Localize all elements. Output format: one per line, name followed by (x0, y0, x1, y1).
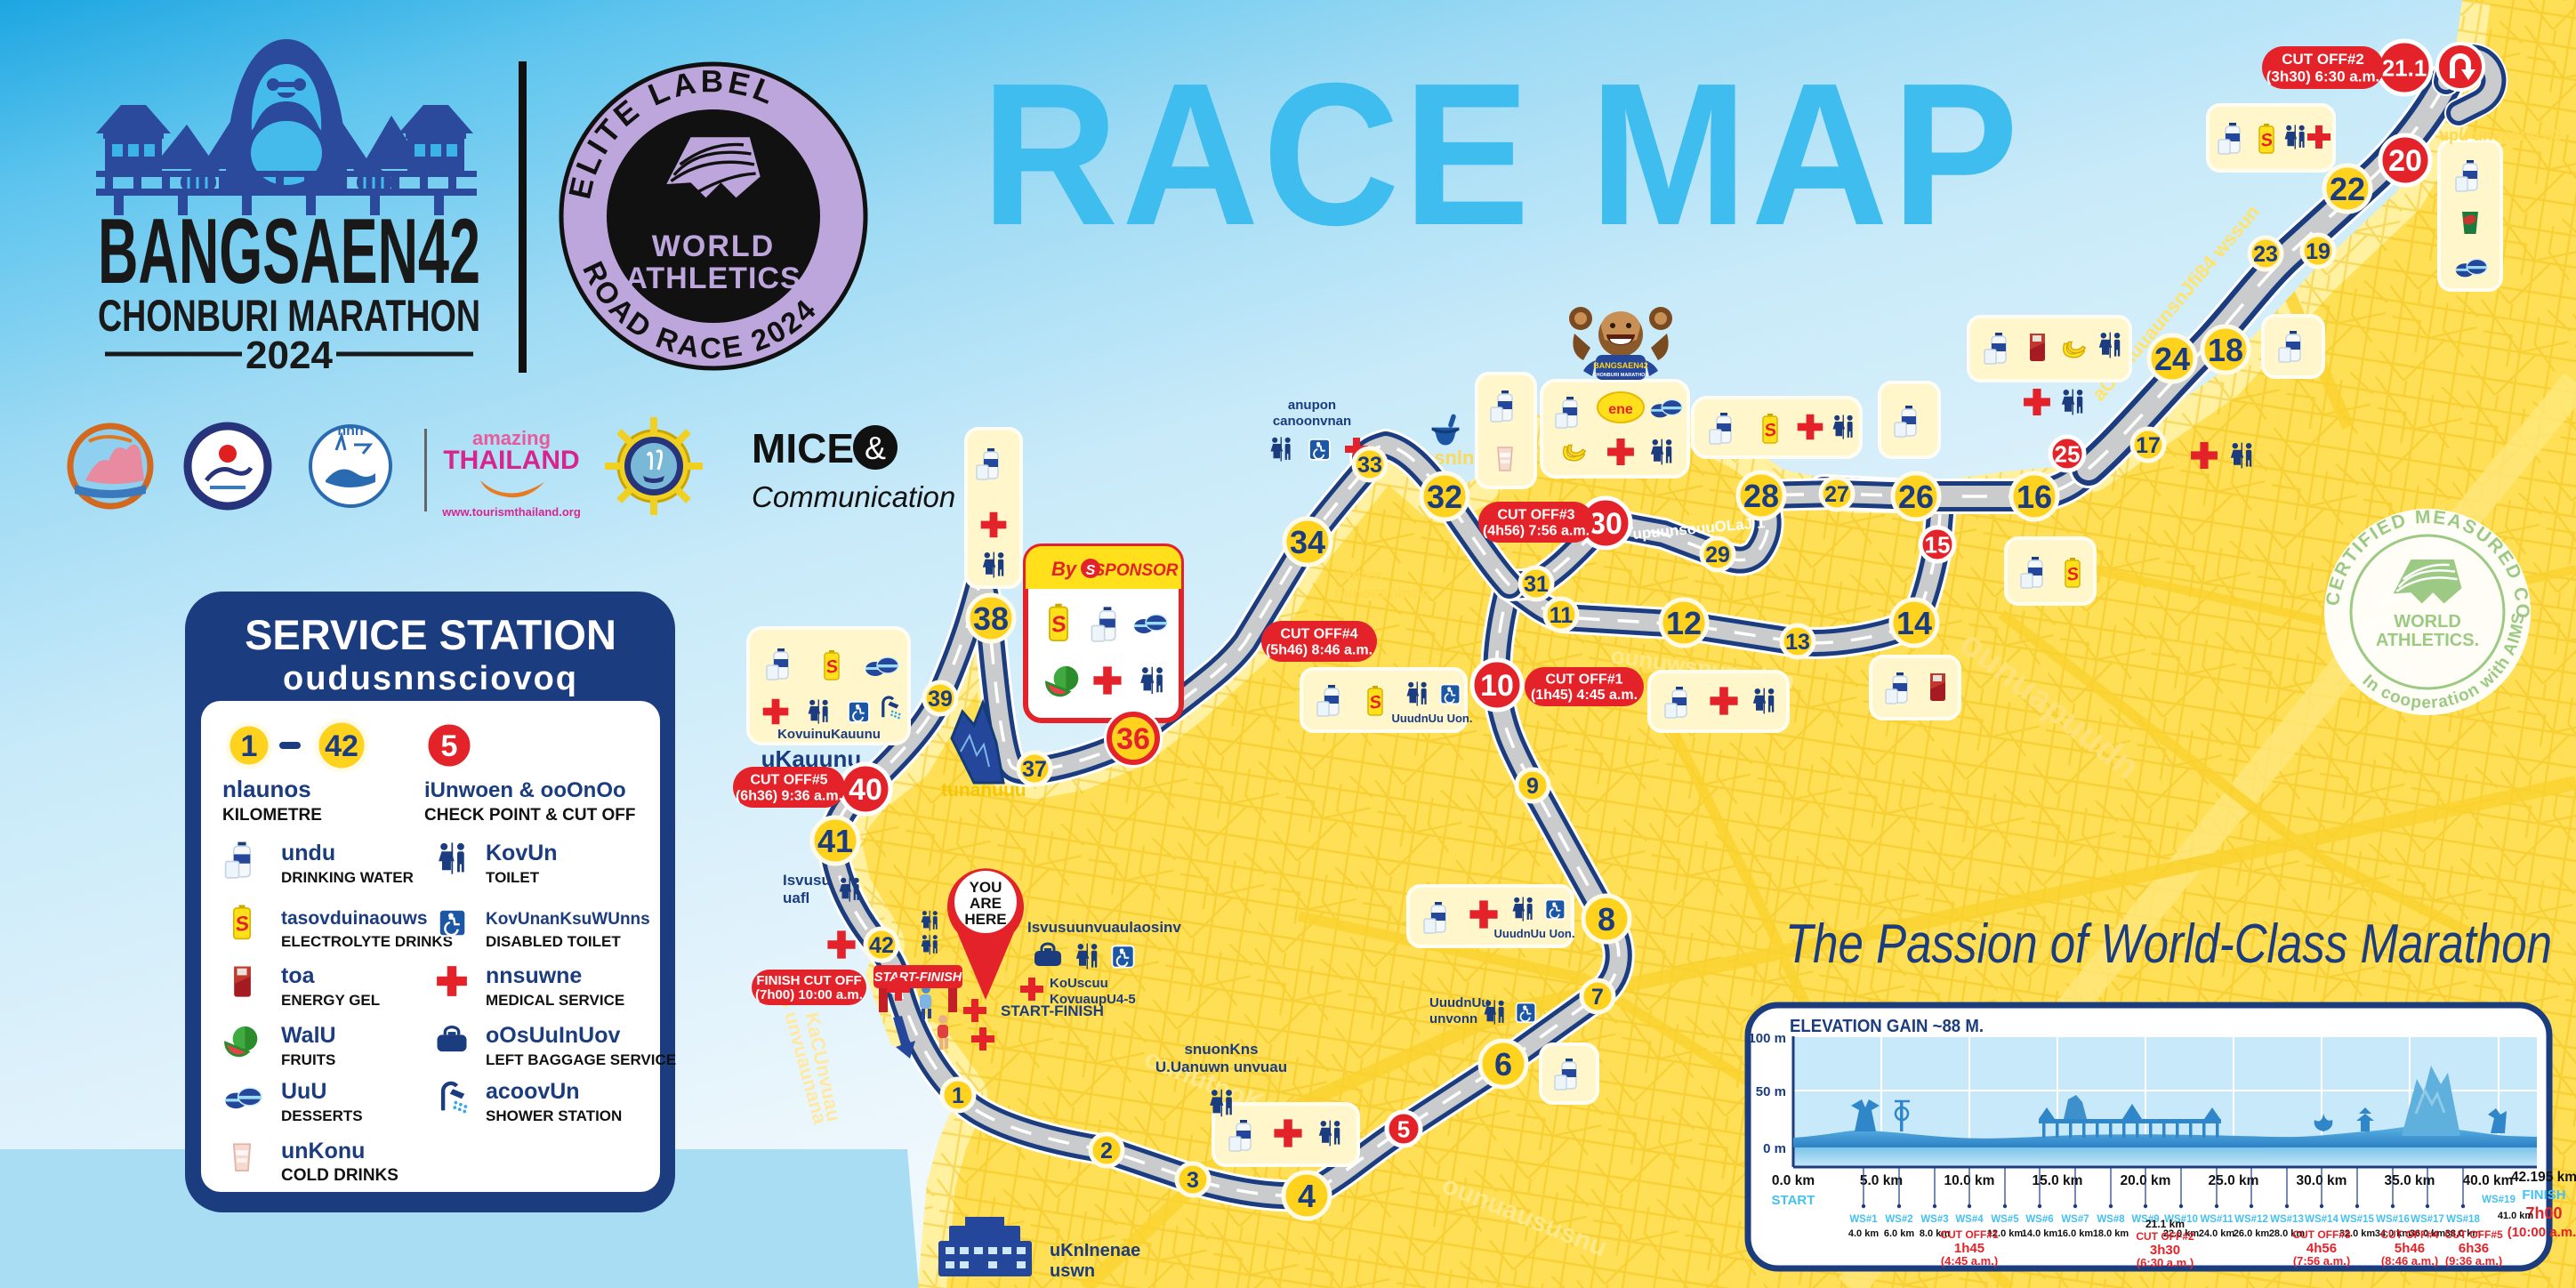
svg-text:24: 24 (2154, 341, 2190, 377)
svg-text:FINISH CUT OFF: FINISH CUT OFF (756, 973, 861, 988)
svg-text:6.0 km: 6.0 km (1884, 1228, 1914, 1239)
svg-text:TOILET: TOILET (486, 869, 540, 886)
svg-text:WS#12: WS#12 (2234, 1214, 2268, 1225)
svg-text:CUT OFF#3: CUT OFF#3 (1497, 507, 1574, 522)
svg-text:snuonKns: snuonKns (1184, 1041, 1258, 1058)
svg-text:40.0 km: 40.0 km (2463, 1173, 2514, 1188)
svg-text:WS#13: WS#13 (2270, 1214, 2304, 1225)
svg-text:nlaunos: nlaunos (222, 776, 311, 802)
svg-text:18: 18 (2208, 332, 2243, 368)
svg-text:KovuaupU4-5: KovuaupU4-5 (1050, 992, 1136, 1007)
svg-text:WS#3: WS#3 (1920, 1214, 1948, 1225)
svg-text:The Passion of World-Class Mar: The Passion of World-Class Marathon (1785, 914, 2552, 975)
svg-text:5: 5 (441, 729, 458, 763)
svg-text:KovUnanKsuWUnns: KovUnanKsuWUnns (486, 910, 650, 929)
svg-text:42: 42 (325, 729, 358, 763)
svg-text:32: 32 (1427, 479, 1462, 515)
svg-text:oudusnnsciovoq: oudusnnsciovoq (283, 660, 578, 697)
svg-text:25: 25 (2055, 440, 2081, 467)
svg-text:18.0 km: 18.0 km (2093, 1228, 2129, 1239)
svg-text:CUT OFF#1: CUT OFF#1 (1940, 1228, 1999, 1241)
svg-text:toa: toa (281, 963, 316, 988)
svg-text:CUT OFF#4: CUT OFF#4 (2380, 1228, 2439, 1241)
svg-text:DESSERTS: DESSERTS (281, 1107, 363, 1124)
svg-text:WS#19: WS#19 (2482, 1195, 2516, 1205)
svg-text:CUT OFF#2: CUT OFF#2 (2136, 1230, 2194, 1243)
svg-text:ene: ene (1608, 402, 1633, 417)
svg-text:(7:56 a.m.): (7:56 a.m.) (2293, 1254, 2350, 1268)
svg-text:28: 28 (1743, 478, 1779, 514)
svg-text:WS#17: WS#17 (2411, 1214, 2444, 1225)
svg-text:WS#14: WS#14 (2305, 1214, 2339, 1225)
svg-text:(7h00) 10:00 a.m.: (7h00) 10:00 a.m. (755, 987, 863, 1002)
svg-text:5.0 km: 5.0 km (1860, 1173, 1903, 1188)
svg-text:5: 5 (1397, 1115, 1410, 1142)
svg-text:41: 41 (817, 823, 853, 859)
svg-text:3: 3 (1187, 1168, 1199, 1193)
svg-text:14.0 km: 14.0 km (2022, 1228, 2058, 1239)
svg-text:UuU: UuU (281, 1079, 326, 1104)
svg-text:WS#11: WS#11 (2200, 1214, 2234, 1225)
svg-text:ELEVATION GAIN ~88 M.: ELEVATION GAIN ~88 M. (1790, 1017, 1984, 1036)
svg-text:THAILAND: THAILAND (443, 446, 579, 475)
svg-text:23: 23 (2253, 242, 2278, 267)
svg-text:50 m: 50 m (1756, 1084, 1786, 1099)
svg-text:COLD DRINKS: COLD DRINKS (281, 1166, 398, 1185)
svg-text:CUT OFF#5: CUT OFF#5 (2444, 1228, 2503, 1241)
svg-text:(4:45 a.m.): (4:45 a.m.) (1941, 1254, 1998, 1268)
svg-text:nnn: nnn (337, 423, 363, 439)
svg-text:DRINKING WATER: DRINKING WATER (281, 869, 414, 886)
svg-text:12: 12 (1666, 605, 1702, 641)
svg-text:11: 11 (1550, 603, 1574, 628)
svg-text:27: 27 (1824, 482, 1849, 507)
svg-text:SHOWER STATION: SHOWER STATION (486, 1107, 622, 1124)
svg-text:WORLD: WORLD (652, 229, 775, 263)
svg-text:1: 1 (952, 1083, 964, 1108)
svg-text:Isvusu: Isvusu (783, 872, 831, 889)
svg-text:(4h56) 7:56 a.m.: (4h56) 7:56 a.m. (1483, 524, 1590, 539)
svg-text:MEDICAL SERVICE: MEDICAL SERVICE (486, 992, 624, 1009)
svg-text:WS#18: WS#18 (2446, 1214, 2480, 1225)
svg-text:19: 19 (2306, 239, 2330, 264)
svg-text:WS#5: WS#5 (1991, 1214, 2019, 1225)
svg-text:BANGSAEN42: BANGSAEN42 (1593, 361, 1648, 370)
svg-text:41.0 km: 41.0 km (2498, 1211, 2534, 1221)
svg-text:21.1 km: 21.1 km (2145, 1218, 2185, 1230)
svg-text:13: 13 (1785, 630, 1810, 655)
svg-text:20: 20 (2388, 144, 2422, 178)
svg-text:RACE MAP: RACE MAP (981, 42, 2022, 268)
svg-text:(8:46 a.m.): (8:46 a.m.) (2381, 1254, 2438, 1268)
svg-text:16: 16 (2017, 479, 2052, 515)
svg-text:37: 37 (1022, 757, 1047, 782)
svg-text:FINISH: FINISH (2522, 1187, 2565, 1203)
svg-text:(5h46) 8:46 a.m.: (5h46) 8:46 a.m. (1266, 643, 1373, 658)
svg-text:2024: 2024 (246, 334, 333, 377)
svg-text:KILOMETRE: KILOMETRE (222, 806, 322, 825)
svg-text:nunonsnlnoo: nunonsnlnoo (1334, 584, 1430, 601)
svg-text:8: 8 (1598, 901, 1615, 938)
svg-text:DISABLED TOILET: DISABLED TOILET (486, 933, 621, 950)
svg-text:22: 22 (2330, 171, 2365, 207)
svg-text:tasovduinaouws: tasovduinaouws (281, 908, 428, 929)
svg-text:4: 4 (1298, 1178, 1316, 1214)
svg-text:40: 40 (849, 773, 882, 807)
svg-text:unKonu: unKonu (281, 1139, 365, 1163)
svg-text:FRUITS: FRUITS (281, 1051, 335, 1068)
svg-text:4.0 km: 4.0 km (1848, 1228, 1879, 1239)
svg-text:15: 15 (1925, 531, 1951, 558)
svg-text:KoUscuu: KoUscuu (1050, 976, 1108, 991)
svg-text:ARE: ARE (970, 895, 1002, 912)
svg-text:7: 7 (1591, 985, 1604, 1010)
svg-text:START-FINISH: START-FINISH (874, 970, 962, 985)
svg-text:(6h36) 9:36 a.m.: (6h36) 9:36 a.m. (736, 789, 842, 804)
svg-text:CUT OFF#1: CUT OFF#1 (1545, 672, 1622, 687)
svg-text:uswn: uswn (1050, 1261, 1095, 1281)
svg-text:17: 17 (2136, 433, 2161, 458)
svg-text:anupon: anupon (1288, 398, 1336, 413)
svg-text:42: 42 (869, 933, 894, 958)
svg-text:undu: undu (281, 841, 335, 865)
svg-text:unvonn: unvonn (1429, 1011, 1477, 1026)
svg-text:www.tourismthailand.org: www.tourismthailand.org (441, 505, 581, 519)
svg-text:21.1: 21.1 (2382, 54, 2427, 81)
svg-text:START: START (1772, 1193, 1815, 1208)
svg-text:By: By (1051, 558, 1078, 580)
svg-text:2: 2 (1100, 1139, 1113, 1163)
svg-text:29: 29 (1705, 543, 1730, 568)
svg-text:9: 9 (1526, 774, 1539, 799)
svg-text:CUT OFF#2: CUT OFF#2 (2282, 51, 2364, 68)
svg-text:&: & (865, 430, 886, 466)
svg-text:nnsuwne: nnsuwne (486, 963, 582, 988)
svg-text:26.0 km: 26.0 km (2234, 1228, 2270, 1239)
svg-text:100 m: 100 m (1748, 1031, 1786, 1046)
svg-text:CUT OFF#5: CUT OFF#5 (750, 772, 827, 787)
svg-text:SPONSOR: SPONSOR (1093, 561, 1178, 580)
svg-text:WS#16: WS#16 (2376, 1214, 2410, 1225)
svg-text:14: 14 (1896, 605, 1932, 641)
svg-text:42.195 km: 42.195 km (2511, 1170, 2576, 1185)
svg-text:MICE: MICE (752, 425, 854, 471)
svg-text:iUnwoen & ooOnOo: iUnwoen & ooOnOo (424, 778, 626, 802)
svg-text:(9:36 a.m.): (9:36 a.m.) (2445, 1254, 2502, 1268)
svg-text:upu unvnsnu 83: upu unvnsnu 83 (2439, 126, 2562, 144)
svg-text:SERVICE STATION: SERVICE STATION (245, 611, 616, 658)
svg-text:WS#15: WS#15 (2340, 1214, 2374, 1225)
svg-text:(1h45) 4:45 a.m.: (1h45) 4:45 a.m. (1531, 688, 1638, 703)
svg-text:1: 1 (241, 729, 258, 763)
svg-text:WORLD: WORLD (2394, 612, 2461, 632)
svg-text:39: 39 (928, 687, 953, 712)
svg-text:ENERGY GEL: ENERGY GEL (281, 992, 380, 1009)
svg-text:26: 26 (1898, 479, 1934, 515)
svg-text:WS#6: WS#6 (2025, 1214, 2053, 1225)
svg-text:(3h30) 6:30 a.m.: (3h30) 6:30 a.m. (2266, 68, 2380, 85)
svg-text:6: 6 (1494, 1046, 1512, 1083)
svg-text:CHECK POINT & CUT OFF: CHECK POINT & CUT OFF (424, 806, 636, 825)
svg-text:ELECTROLYTE DRINKS: ELECTROLYTE DRINKS (281, 933, 453, 950)
svg-text:ATHLETICS: ATHLETICS (625, 262, 801, 295)
svg-text:10: 10 (1480, 669, 1514, 703)
svg-text:U.Uanuwn unvuau: U.Uanuwn unvuau (1155, 1059, 1287, 1075)
svg-text:33: 33 (1357, 453, 1382, 478)
svg-text:acoovUn: acoovUn (486, 1079, 580, 1104)
svg-text:uafl: uafl (783, 890, 809, 906)
svg-text:uKnInenae: uKnInenae (1050, 1241, 1140, 1260)
svg-text:WS#1: WS#1 (1849, 1214, 1878, 1225)
svg-text:CUT OFF#3: CUT OFF#3 (2292, 1228, 2351, 1241)
svg-text:38: 38 (973, 600, 1009, 637)
svg-text:36: 36 (1116, 722, 1150, 756)
svg-text:0.0 km: 0.0 km (1772, 1173, 1815, 1188)
svg-text:WS#4: WS#4 (1955, 1214, 1984, 1225)
svg-text:UuudnUu Uon.: UuudnUu Uon. (1392, 712, 1473, 725)
svg-text:WalU: WalU (281, 1023, 336, 1048)
svg-text:LEFT BAGGAGE SERVICE: LEFT BAGGAGE SERVICE (486, 1051, 676, 1068)
svg-text:ednien: ednien (1334, 567, 1383, 584)
svg-text:YOU: YOU (970, 879, 1002, 896)
svg-text:UuudnUu: UuudnUu (1429, 995, 1489, 1010)
svg-text:31: 31 (1524, 572, 1549, 597)
svg-text:BANGSAEN42: BANGSAEN42 (98, 200, 480, 303)
svg-text:34: 34 (1290, 524, 1325, 560)
svg-text:WS#2: WS#2 (1885, 1214, 1912, 1225)
svg-text:KovUn: KovUn (486, 841, 558, 865)
svg-text:oOsUuInUov: oOsUuInUov (486, 1023, 620, 1048)
svg-text:0 m: 0 m (1763, 1141, 1786, 1156)
svg-text:(10:00 a.m.): (10:00 a.m.) (2508, 1225, 2576, 1240)
svg-text:24.0 km: 24.0 km (2199, 1228, 2235, 1239)
svg-text:(6:30 a.m.): (6:30 a.m.) (2137, 1256, 2194, 1269)
svg-text:canoonvnan: canoonvnan (1273, 414, 1351, 429)
svg-text:16.0 km: 16.0 km (2057, 1228, 2094, 1239)
svg-text:WS#7: WS#7 (2061, 1214, 2089, 1225)
svg-text:CUT OFF#4: CUT OFF#4 (1280, 626, 1357, 641)
svg-text:CHONBURI MARATHON: CHONBURI MARATHON (1593, 373, 1649, 378)
svg-text:Isvusuunvuaulaosinv: Isvusuunvuaulaosinv (1027, 919, 1181, 936)
svg-text:HERE: HERE (964, 911, 1006, 928)
svg-text:UuudnUu Uon.: UuudnUu Uon. (1494, 927, 1575, 940)
svg-text:WS#8: WS#8 (2097, 1214, 2125, 1225)
svg-text:ATHLETICS.: ATHLETICS. (2376, 631, 2479, 650)
svg-text:KovuinuKauunu: KovuinuKauunu (777, 727, 881, 742)
svg-text:Communication: Communication (752, 480, 955, 513)
